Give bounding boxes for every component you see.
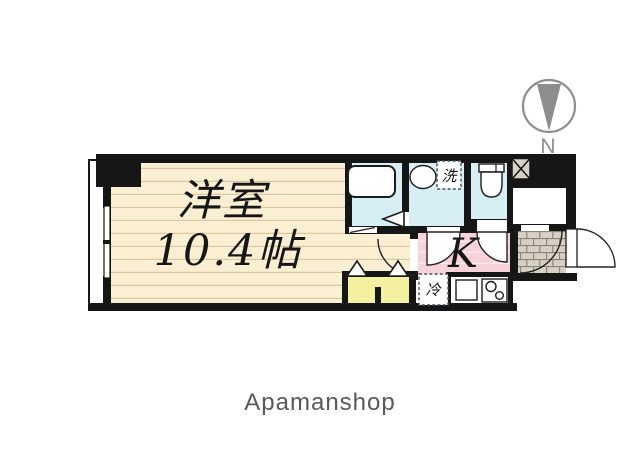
wall-washroom-toilet — [464, 163, 471, 226]
fridge-label: 冷 — [425, 281, 442, 299]
toilet-icon — [479, 164, 504, 197]
washbasin-icon — [410, 166, 436, 189]
laundry-label: 洗 — [441, 167, 458, 185]
wall-kitchen-entry — [510, 231, 518, 276]
door-swing-arc-front-door — [577, 229, 615, 267]
kitchen-label: K — [447, 231, 480, 277]
entry-closet — [513, 188, 566, 224]
closet-divider — [375, 287, 381, 303]
ps-shaft-box — [512, 159, 530, 180]
floor-plan-canvas: 洋室 10.4帖 K 洗 冷 N Apamanshop — [0, 0, 640, 455]
floor-plan-page: 洋室 10.4帖 K 洗 冷 N Apamanshop — [0, 0, 640, 455]
brand-label: Apamanshop — [244, 389, 395, 416]
stove-icon — [482, 279, 507, 302]
wall-entry-bottom — [511, 273, 577, 281]
room-size-label: 10.4帖 — [154, 226, 307, 276]
north-label: N — [540, 135, 555, 158]
compass-icon: N — [523, 80, 575, 158]
opening-room-door — [410, 239, 418, 271]
opening-closet-door — [521, 225, 549, 231]
front-door-leaf — [566, 229, 577, 267]
wall-bath-washroom — [402, 163, 409, 212]
bathtub-icon — [348, 166, 395, 197]
room-label: 洋室 — [177, 176, 271, 226]
kitchen-sink-icon — [456, 280, 477, 300]
opening-toilet-door — [477, 220, 507, 232]
window-mullion — [103, 240, 111, 244]
